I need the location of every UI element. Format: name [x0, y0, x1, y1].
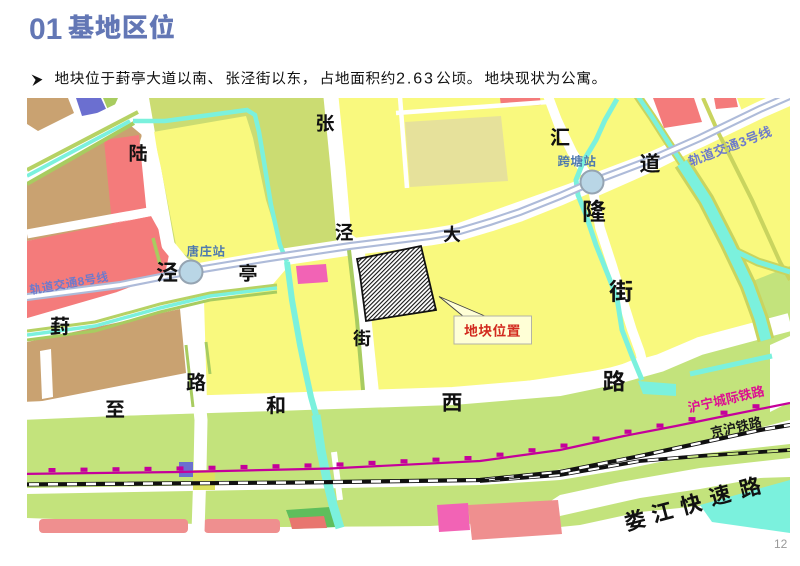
svg-text:2.63: 2.63 — [396, 70, 435, 87]
svg-text:12: 12 — [774, 537, 788, 551]
svg-text:01: 01 — [29, 13, 62, 46]
